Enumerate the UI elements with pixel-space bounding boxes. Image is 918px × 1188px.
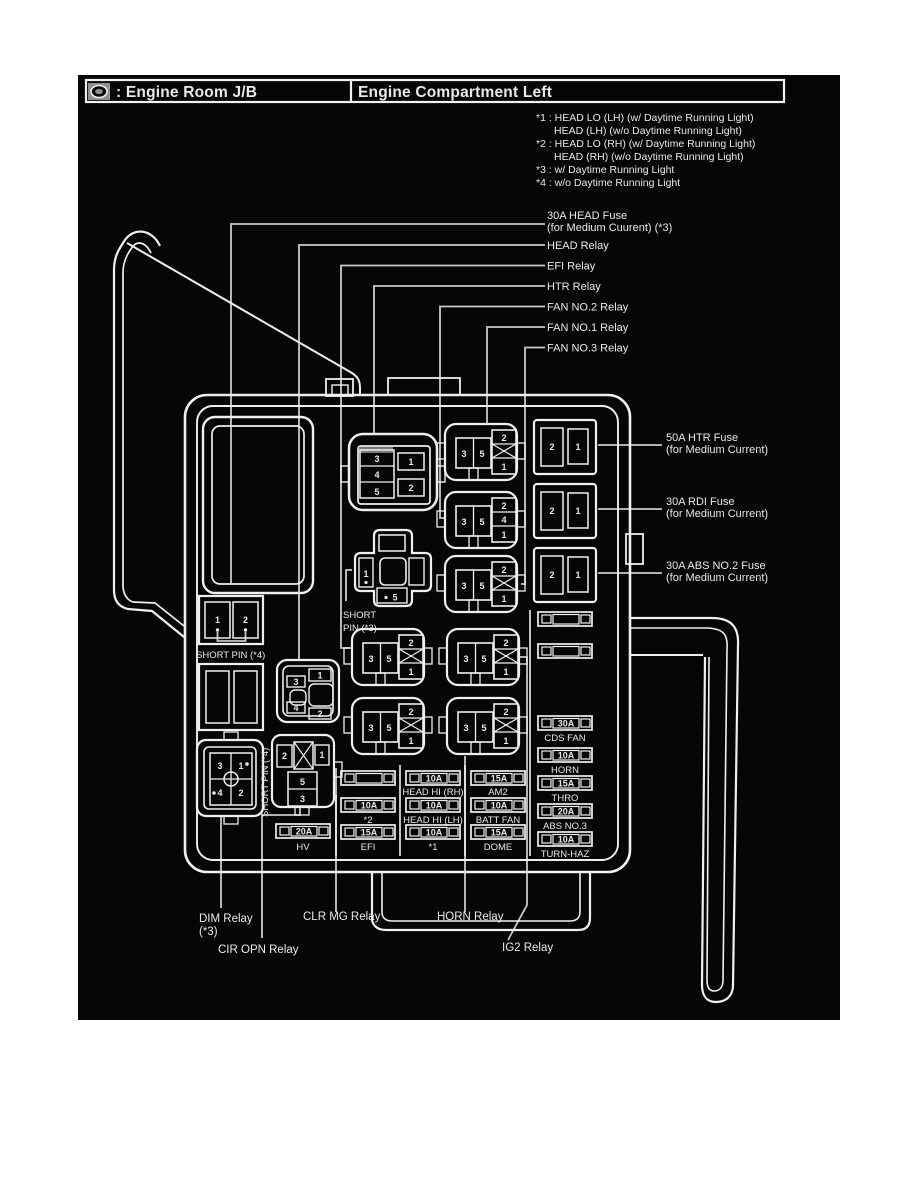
fuse-horn-name: HORN bbox=[551, 765, 579, 776]
abs-no2-fuse-pin-2: 2 bbox=[549, 570, 554, 580]
callout-head-fuse-line1: 30A HEAD Fuse bbox=[547, 210, 627, 222]
header-right-title: Engine Compartment Left bbox=[358, 84, 552, 101]
callout-head-fuse-line2: (for Medium Cuurent) (*3) bbox=[547, 222, 672, 234]
fuse-dome-name: DOME bbox=[484, 842, 513, 853]
callout-rdi-fuse-line2: (for Medium Current) bbox=[666, 508, 768, 520]
dim-relay-pin-1: 1 bbox=[238, 761, 243, 771]
callout-fan3-relay: FAN NO.3 Relay bbox=[547, 343, 629, 355]
fuse-am2-name: AM2 bbox=[488, 787, 508, 798]
dim-relay-pin-4: 4 bbox=[217, 788, 222, 798]
head-relay-pin-4: 4 bbox=[293, 703, 298, 713]
note-1a: *1 : HEAD LO (LH) (w/ Daytime Running Li… bbox=[536, 112, 754, 124]
callout-htr-fuse-line2: (for Medium Current) bbox=[666, 444, 768, 456]
fan-no3-pin-2: 2 bbox=[501, 565, 506, 575]
dim-relay-pin-3: 3 bbox=[217, 761, 222, 771]
header-left-title: : Engine Room J/B bbox=[116, 84, 257, 101]
clr-mg-relay-pin-1: 1 bbox=[408, 736, 413, 746]
fuse-star1-name: *1 bbox=[429, 842, 438, 853]
htr-relay-pin-2: 2 bbox=[408, 483, 413, 493]
horn-relay-pin-3: 3 bbox=[463, 723, 468, 733]
fan-no2-pin-5: 5 bbox=[479, 517, 484, 527]
note-2a: *2 : HEAD LO (RH) (w/ Daytime Running Li… bbox=[536, 138, 755, 150]
fuse-am2-amp: 15A bbox=[491, 774, 508, 784]
manual-page: : Engine Room J/B Engine Compartment Lef… bbox=[0, 0, 918, 1188]
fuse-abs-no3-amp: 20A bbox=[558, 807, 575, 817]
callout-dim-relay-line1: DIM Relay bbox=[199, 913, 253, 925]
htr-relay-pin-5: 5 bbox=[374, 487, 379, 497]
fuse-head-hi-rh-name: HEAD HI (RH) bbox=[402, 787, 463, 798]
head-relay-pin-2: 2 bbox=[317, 709, 322, 719]
callout-clr-mg-relay: CLR MG Relay bbox=[303, 911, 381, 923]
fan-no1-pin-2: 2 bbox=[501, 433, 506, 443]
short-pin4-pin-1: 1 bbox=[215, 615, 220, 625]
short-pin3-pin-1: 1 bbox=[363, 569, 368, 579]
cir-opn-pin-5: 5 bbox=[300, 777, 305, 787]
callout-rdi-fuse-line1: 30A RDI Fuse bbox=[666, 496, 734, 508]
cir-opn-pin-3: 3 bbox=[300, 794, 305, 804]
dim-relay-pin-2: 2 bbox=[238, 788, 243, 798]
clr-mg-relay-pin-5: 5 bbox=[386, 723, 391, 733]
note-2b: HEAD (RH) (w/o Daytime Running Light) bbox=[554, 151, 744, 163]
fan-no2-pin-1: 1 bbox=[501, 530, 506, 540]
fuse-hv-name: HV bbox=[296, 842, 310, 853]
callout-dim-relay-line2: (*3) bbox=[199, 926, 218, 938]
fuse-thro-amp: 15A bbox=[558, 779, 575, 789]
fan-no3-pin-1: 1 bbox=[501, 594, 506, 604]
rdi-fuse-pin-2: 2 bbox=[549, 506, 554, 516]
clr-mg-relay-pin-2: 2 bbox=[408, 707, 413, 717]
short-pin4-vertical-label: SHORT PIN (*4) bbox=[260, 748, 271, 817]
horn-relay-pin-5: 5 bbox=[481, 723, 486, 733]
abs-no2-fuse-pin-1: 1 bbox=[575, 570, 580, 580]
note-4: *4 : w/o Daytime Running Light bbox=[536, 177, 680, 189]
callout-abs-fuse-line2: (for Medium Current) bbox=[666, 572, 768, 584]
cir-opn-pin-1: 1 bbox=[319, 750, 324, 760]
note-3: *3 : w/ Daytime Running Light bbox=[536, 164, 674, 176]
fan-no1-pin-5: 5 bbox=[479, 449, 484, 459]
callout-abs-fuse-line1: 30A ABS NO.2 Fuse bbox=[666, 560, 766, 572]
short-pin4-pin-2: 2 bbox=[243, 615, 248, 625]
fuse-thro-name: THRO bbox=[552, 793, 579, 804]
engine-room-jb-icon bbox=[88, 83, 110, 100]
fusebox-diagram: : Engine Room J/B Engine Compartment Lef… bbox=[0, 0, 918, 1188]
cir-opn-pin-2: 2 bbox=[282, 751, 287, 761]
fuse-cds-fan-amp: 30A bbox=[558, 719, 575, 729]
fuse-efi-name: EFI bbox=[361, 842, 376, 853]
callout-htr-fuse-line1: 50A HTR Fuse bbox=[666, 432, 738, 444]
fan-no3-pin-5: 5 bbox=[479, 581, 484, 591]
callout-efi-relay: EFI Relay bbox=[547, 261, 596, 273]
htr-fuse-pin-1: 1 bbox=[575, 442, 580, 452]
fan-no3-pin-3: 3 bbox=[461, 581, 466, 591]
fuse-head-hi-rh-amp: 10A bbox=[426, 774, 443, 784]
fuse-horn-amp: 10A bbox=[558, 751, 575, 761]
fuse-cds-fan-name: CDS FAN bbox=[544, 733, 585, 744]
fuse-batt-fan-amp: 10A bbox=[491, 801, 508, 811]
ig2-relay-pin-1: 1 bbox=[503, 667, 508, 677]
callout-head-relay: HEAD Relay bbox=[547, 240, 609, 252]
fan-no2-pin-3: 3 bbox=[461, 517, 466, 527]
fuse-dome-amp: 15A bbox=[491, 828, 508, 838]
short-pin3-pin-5: 5 bbox=[392, 593, 397, 603]
fuse-star1-amp: 10A bbox=[426, 828, 443, 838]
fuse-turn-haz-name: TURN-HAZ bbox=[541, 849, 590, 860]
efi-relay-pin-1: 1 bbox=[408, 667, 413, 677]
fuse-abs-no3-name: ABS NO.3 bbox=[543, 821, 587, 832]
efi-relay-pin-5: 5 bbox=[386, 654, 391, 664]
short-pin4-label: SHORT PIN (*4) bbox=[196, 650, 265, 661]
fan-no2-pin-2: 2 bbox=[501, 501, 506, 511]
head-relay-pin-1: 1 bbox=[317, 671, 322, 681]
fuse-turn-haz-amp: 10A bbox=[558, 835, 575, 845]
rdi-fuse-pin-1: 1 bbox=[575, 506, 580, 516]
htr-fuse-pin-2: 2 bbox=[549, 442, 554, 452]
efi-relay-pin-3: 3 bbox=[368, 654, 373, 664]
short-pin3-label-line1: SHORT bbox=[343, 610, 376, 621]
header-bar: : Engine Room J/B Engine Compartment Lef… bbox=[86, 80, 784, 102]
htr-relay-pin-1: 1 bbox=[408, 457, 413, 467]
ig2-relay-pin-5: 5 bbox=[481, 654, 486, 664]
fan-no1-pin-1: 1 bbox=[501, 462, 506, 472]
fan-no1-pin-3: 3 bbox=[461, 449, 466, 459]
callout-htr-relay: HTR Relay bbox=[547, 281, 601, 293]
callout-ig2-relay: IG2 Relay bbox=[502, 942, 553, 954]
callout-fan1-relay: FAN NO.1 Relay bbox=[547, 322, 629, 334]
htr-relay-pin-3: 3 bbox=[374, 454, 379, 464]
ig2-relay-pin-2: 2 bbox=[503, 638, 508, 648]
callout-fan2-relay: FAN NO.2 Relay bbox=[547, 302, 629, 314]
fuse-star2-amp: 10A bbox=[361, 801, 378, 811]
clr-mg-relay-pin-3: 3 bbox=[368, 723, 373, 733]
horn-relay-pin-2: 2 bbox=[503, 707, 508, 717]
fuse-hv-amp: 20A bbox=[296, 827, 313, 837]
ig2-relay-pin-3: 3 bbox=[463, 654, 468, 664]
fuse-efi-amp: 15A bbox=[361, 828, 378, 838]
head-relay-pin-3: 3 bbox=[293, 677, 298, 687]
htr-relay-pin-4: 4 bbox=[374, 470, 379, 480]
horn-relay-pin-1: 1 bbox=[503, 736, 508, 746]
fan-no2-pin-4: 4 bbox=[501, 515, 506, 525]
callout-cir-opn-relay: CIR OPN Relay bbox=[218, 944, 299, 956]
fuse-head-hi-lh-amp: 10A bbox=[426, 801, 443, 811]
note-1b: HEAD (LH) (w/o Daytime Running Light) bbox=[554, 125, 742, 137]
efi-relay-pin-2: 2 bbox=[408, 638, 413, 648]
